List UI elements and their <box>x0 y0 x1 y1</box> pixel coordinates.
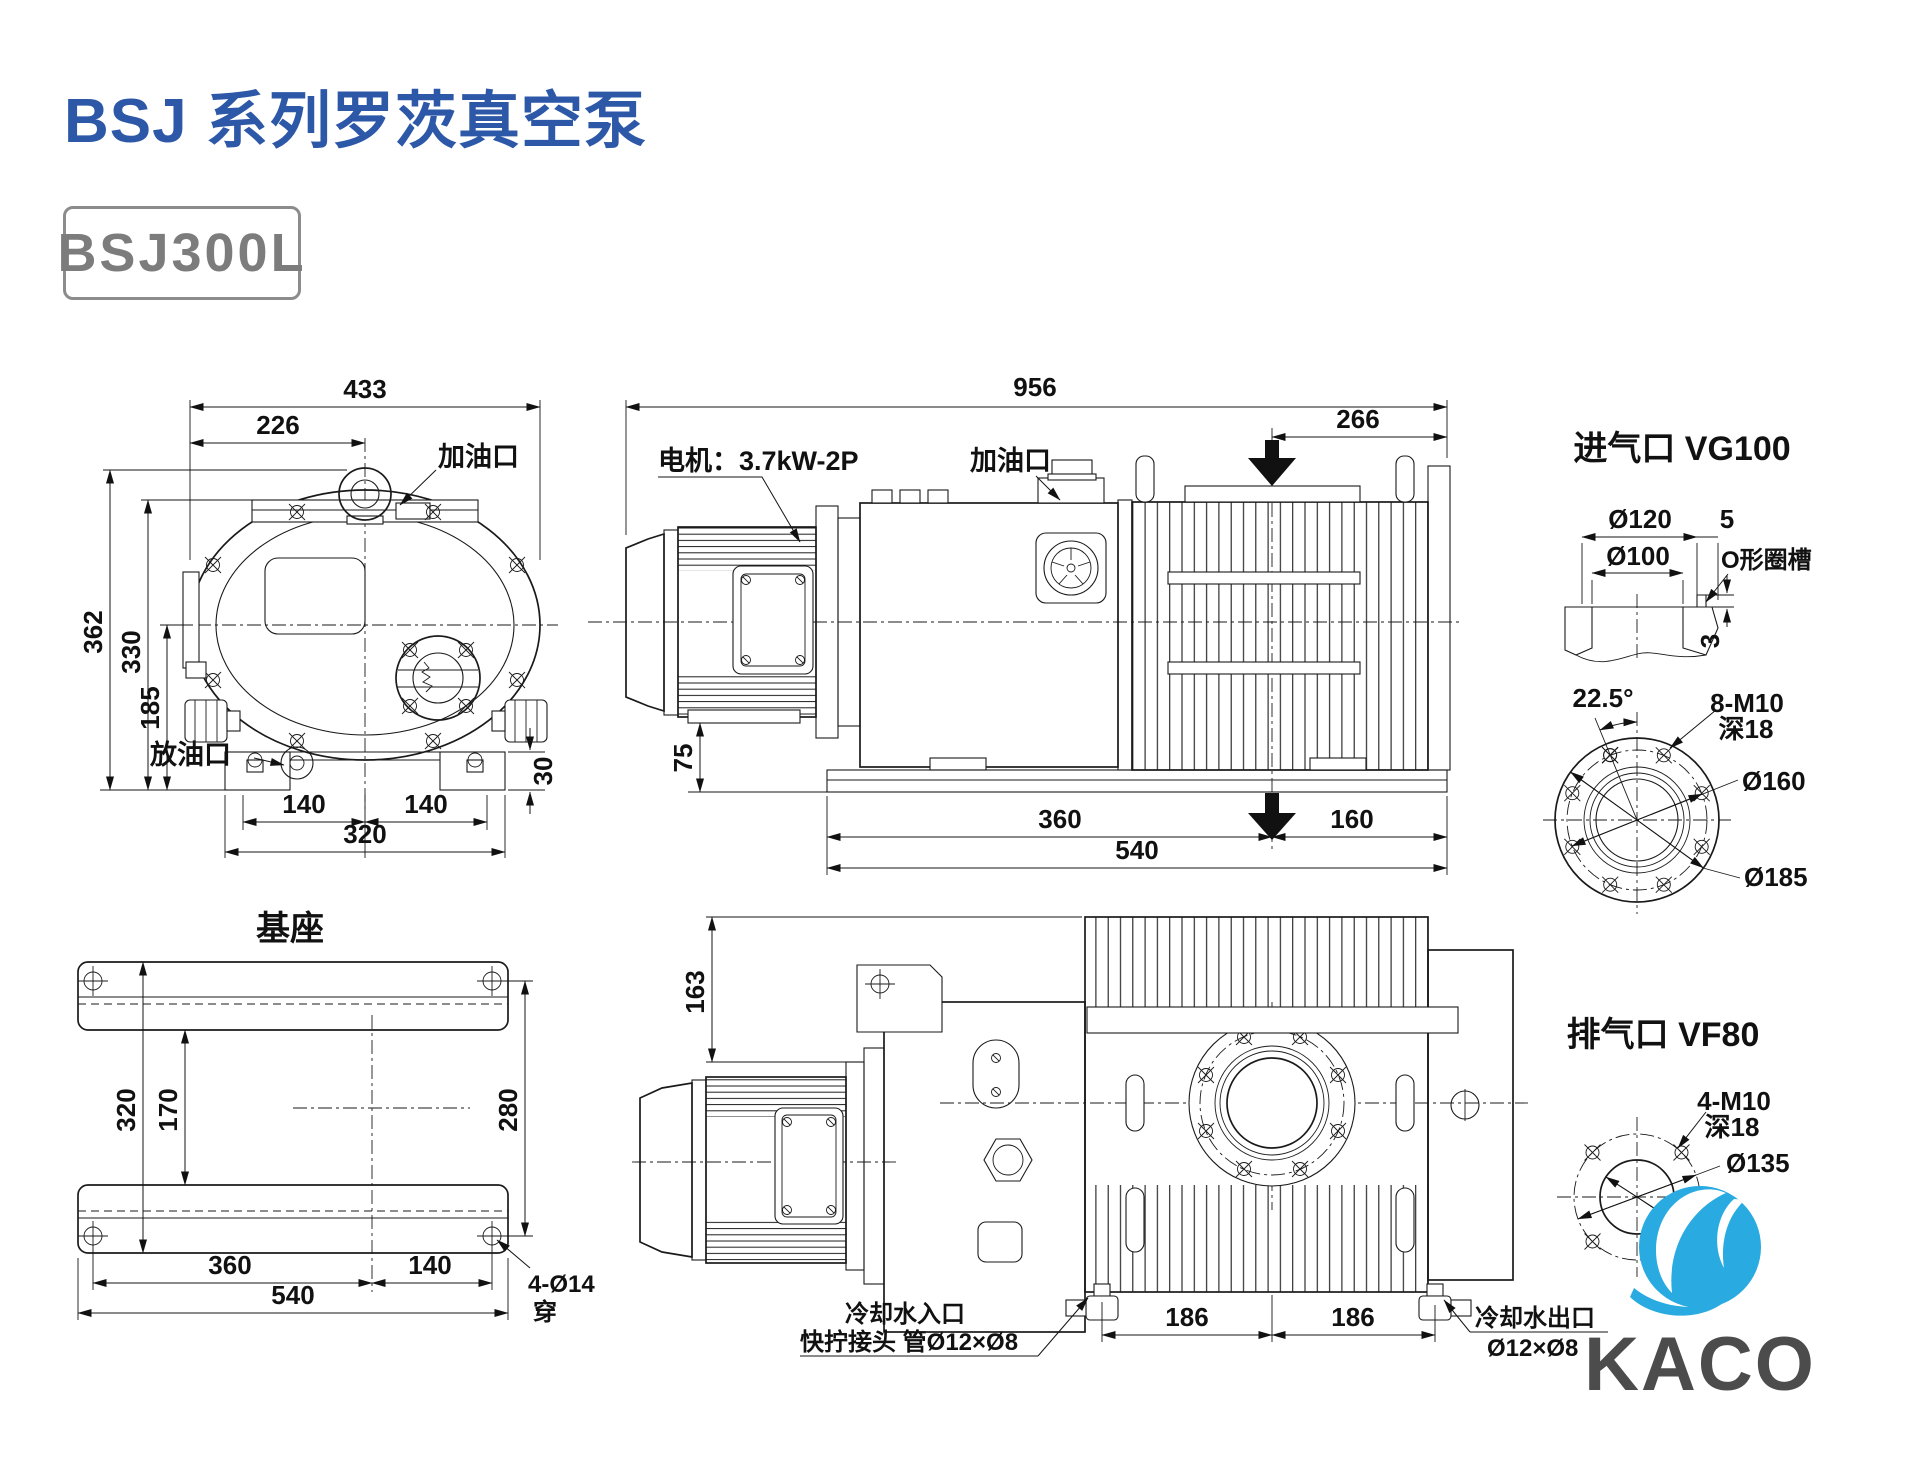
base-hole-note-1: 4-Ø14 <box>528 1271 595 1298</box>
inlet-flange-face: 22.5° 8-M10 深18 Ø160 Ø185 <box>1543 683 1808 914</box>
inlet-bolt-note-2: 深18 <box>1719 714 1774 744</box>
dim-d135: Ø135 <box>1726 1148 1790 1178</box>
base-hole <box>477 1221 507 1251</box>
oil-sight-glass <box>1036 533 1106 603</box>
dim-d100: Ø100 <box>1606 541 1670 571</box>
mount-plate <box>857 965 942 1032</box>
dim-d185: Ø185 <box>1744 862 1808 892</box>
break-line <box>1576 653 1706 662</box>
coolant-out-label-1: 冷却水出口 <box>1475 1304 1595 1332</box>
section-hatch-left <box>1565 607 1592 655</box>
dim-170: 170 <box>153 1088 183 1131</box>
motor <box>626 527 816 723</box>
angle-label: 22.5° <box>1572 683 1633 713</box>
inlet-title: 进气口 VG100 <box>1573 430 1790 468</box>
dim-360-base: 360 <box>208 1250 251 1280</box>
gear-housing <box>860 460 1118 767</box>
motor-top <box>640 1077 846 1263</box>
side-strip-plate <box>183 572 199 668</box>
kaco-logo-text: KACO <box>1584 1322 1816 1407</box>
side-oil-fill-label: 加油口 <box>970 446 1051 476</box>
cross-bar <box>1087 1007 1458 1033</box>
inlet-flange-plate <box>1185 486 1360 502</box>
shaft-spring-symbol <box>422 662 432 692</box>
end-cover <box>1428 466 1450 770</box>
lifting-handle <box>1136 456 1154 502</box>
dim-266: 266 <box>1336 404 1379 434</box>
coolant-in-label-2: 快拧接头 管Ø12×Ø8 <box>800 1328 1018 1356</box>
discharge-flange-top <box>1189 1020 1355 1186</box>
outlet-bolt-note-2: 深18 <box>1705 1112 1760 1142</box>
base-hole <box>477 966 507 996</box>
outlet-title: 排气口 VF80 <box>1567 1016 1760 1054</box>
dim-d160: Ø160 <box>1742 766 1806 796</box>
dim-540-side: 540 <box>1115 835 1158 865</box>
end-housing-top <box>1428 950 1513 1280</box>
base-view: 基座 320 170 280 <box>78 910 595 1326</box>
dim-433: 433 <box>343 374 386 404</box>
dim-140l: 140 <box>282 789 325 819</box>
left-knob <box>185 700 240 742</box>
dim-186l: 186 <box>1165 1302 1208 1332</box>
right-knob <box>492 700 547 742</box>
coolant-out-label-2: Ø12×Ø8 <box>1487 1335 1578 1362</box>
dim-160: 160 <box>1330 804 1373 834</box>
dim-320-base: 320 <box>111 1088 141 1131</box>
oring-label: O形圈槽 <box>1721 547 1812 574</box>
oval-boss <box>973 1040 1019 1108</box>
bottom-pad <box>978 1222 1022 1262</box>
dim-320: 320 <box>343 819 386 849</box>
dim-d120: Ø120 <box>1608 504 1672 534</box>
inlet-flow-arrow-bottom <box>1248 793 1296 840</box>
pump-fin-section <box>1118 456 1450 770</box>
inlet-detail: 进气口 VG100 Ø120 5 Ø100 O形圈槽 <box>1543 430 1812 914</box>
junction-box-top <box>775 1108 843 1224</box>
rim-bolt <box>425 733 441 749</box>
dim-360-side: 360 <box>1038 804 1081 834</box>
base-hole-note-2: 穿 <box>533 1298 557 1326</box>
motor-junction-box <box>733 566 813 674</box>
side-view: 956 266 电机：3.7kW-2P 加油口 75 360 160 <box>588 372 1462 875</box>
kaco-logo: KACO <box>1584 1186 1816 1407</box>
dim-186r: 186 <box>1331 1302 1374 1332</box>
rim-bolt <box>205 672 221 688</box>
front-oil-fill-plug <box>396 503 430 519</box>
dim-75: 75 <box>668 744 698 773</box>
base-hole <box>78 966 108 996</box>
oil-fill-boss <box>1038 478 1104 503</box>
dim-163: 163 <box>680 970 710 1013</box>
inlet-cross-section: Ø120 5 Ø100 O形圈槽 3 <box>1565 504 1812 662</box>
dim-140-base: 140 <box>408 1250 451 1280</box>
coolant-in-label-1: 冷却水入口 <box>845 1300 965 1328</box>
dim-140r: 140 <box>404 789 447 819</box>
dim-5: 5 <box>1720 504 1734 534</box>
oil-drain-label: 放油口 <box>149 739 231 770</box>
lifting-handle <box>1396 456 1414 502</box>
rim-bolt <box>509 672 525 688</box>
dim-362: 362 <box>78 610 108 653</box>
drive-flange <box>396 636 480 720</box>
dim-956: 956 <box>1013 372 1056 402</box>
base-title: 基座 <box>256 910 324 948</box>
dim-185: 185 <box>135 686 165 729</box>
top-view: 163 186 186 冷却水入口 快拧接头 管Ø12×Ø8 冷却水出口 Ø12… <box>632 917 1608 1362</box>
dim-30: 30 <box>528 757 558 786</box>
front-oil-fill-label: 加油口 <box>438 442 519 472</box>
motor-bell <box>626 534 664 711</box>
dim-330: 330 <box>116 630 146 673</box>
dim-226: 226 <box>256 410 299 440</box>
dim-280: 280 <box>493 1088 523 1131</box>
base-hole <box>78 1221 108 1251</box>
technical-drawing: 433 226 加油口 362 330 185 放油口 <box>0 0 1920 1462</box>
front-view: 433 226 加油口 362 330 185 放油口 <box>78 374 558 858</box>
angle-arc <box>1600 722 1637 730</box>
gear-housing-top <box>857 965 1085 1332</box>
inspection-window <box>265 558 365 634</box>
drawing-page: BSJ 系列罗茨真空泵 BSJ300L <box>0 0 1920 1462</box>
motor-label: 电机：3.7kW-2P <box>658 446 859 476</box>
motor-foot <box>688 710 800 723</box>
dim-540-base: 540 <box>271 1280 314 1310</box>
inlet-flow-arrow <box>1248 440 1296 486</box>
dim-3: 3 <box>1695 634 1725 648</box>
